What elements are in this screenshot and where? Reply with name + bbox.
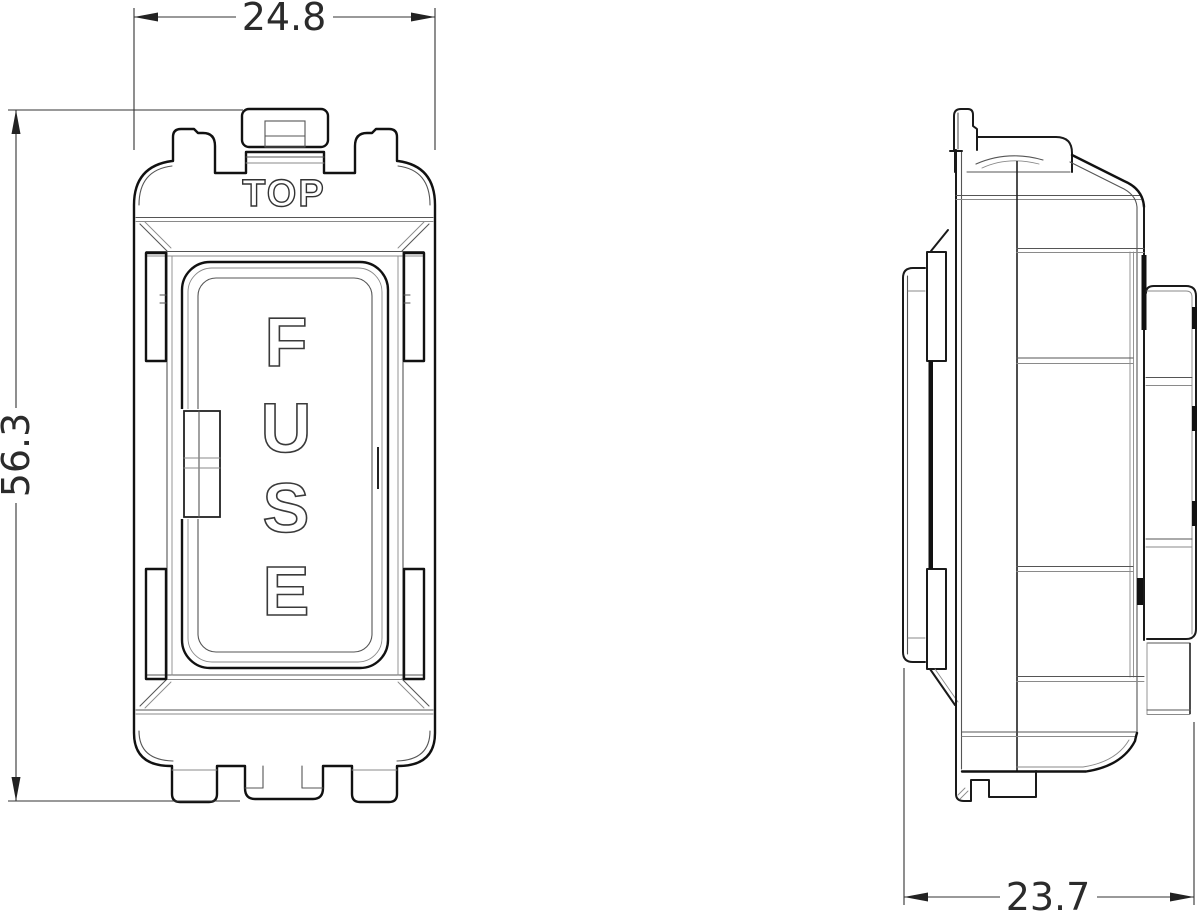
side-rear-block	[1146, 286, 1197, 639]
carrier-latch	[179, 409, 220, 519]
side-flange-lip	[903, 268, 925, 662]
rear-terminal-bump-3	[1192, 501, 1197, 526]
fuse-letter-e: E	[263, 552, 310, 630]
front-inner-corner-top-right	[398, 166, 430, 205]
mounting-clip-top-left	[146, 253, 166, 361]
side-top-cap	[955, 137, 1072, 172]
depth-dimension: 23.7	[904, 668, 1194, 918]
mounting-clip-bottom-left	[146, 569, 166, 679]
fuse-letter-f: F	[265, 303, 308, 381]
mounting-clip-bottom-right	[404, 569, 424, 679]
side-face-lines	[962, 249, 1144, 737]
width-dimension-value: 24.8	[242, 0, 327, 39]
fuse-marking: F U S E	[261, 303, 312, 630]
fuse-letter-s: S	[263, 469, 310, 547]
width-dimension: 24.8	[134, 0, 435, 150]
side-bottom	[956, 733, 1137, 801]
fuse-letter-u: U	[261, 389, 312, 467]
rear-terminal-bump-2	[1192, 406, 1197, 431]
depth-dimension-value: 23.7	[1006, 875, 1091, 918]
front-inner-corner-bottom-left	[139, 731, 173, 761]
side-mounting-clips	[927, 230, 958, 705]
top-clip	[242, 109, 328, 147]
top-clip-inner-tab	[265, 121, 305, 147]
technical-drawing-page: TOP	[0, 0, 1200, 918]
front-inner-corner-bottom-right	[397, 731, 430, 761]
technical-drawing-canvas: TOP	[0, 0, 1200, 918]
carrier-latch-body	[184, 411, 220, 517]
side-view	[903, 109, 1197, 801]
height-dimension-value: 56.3	[0, 413, 38, 498]
mounting-clip-top-right	[404, 253, 424, 361]
rear-terminal-bump-1	[1192, 307, 1197, 329]
front-inner-corner-top-left	[139, 166, 172, 205]
side-rear-lower	[1147, 643, 1190, 715]
top-marking: TOP	[242, 173, 325, 215]
front-bottom-tab-details	[172, 766, 397, 788]
side-bottom-lug	[956, 771, 1036, 801]
front-view: TOP	[134, 109, 435, 802]
